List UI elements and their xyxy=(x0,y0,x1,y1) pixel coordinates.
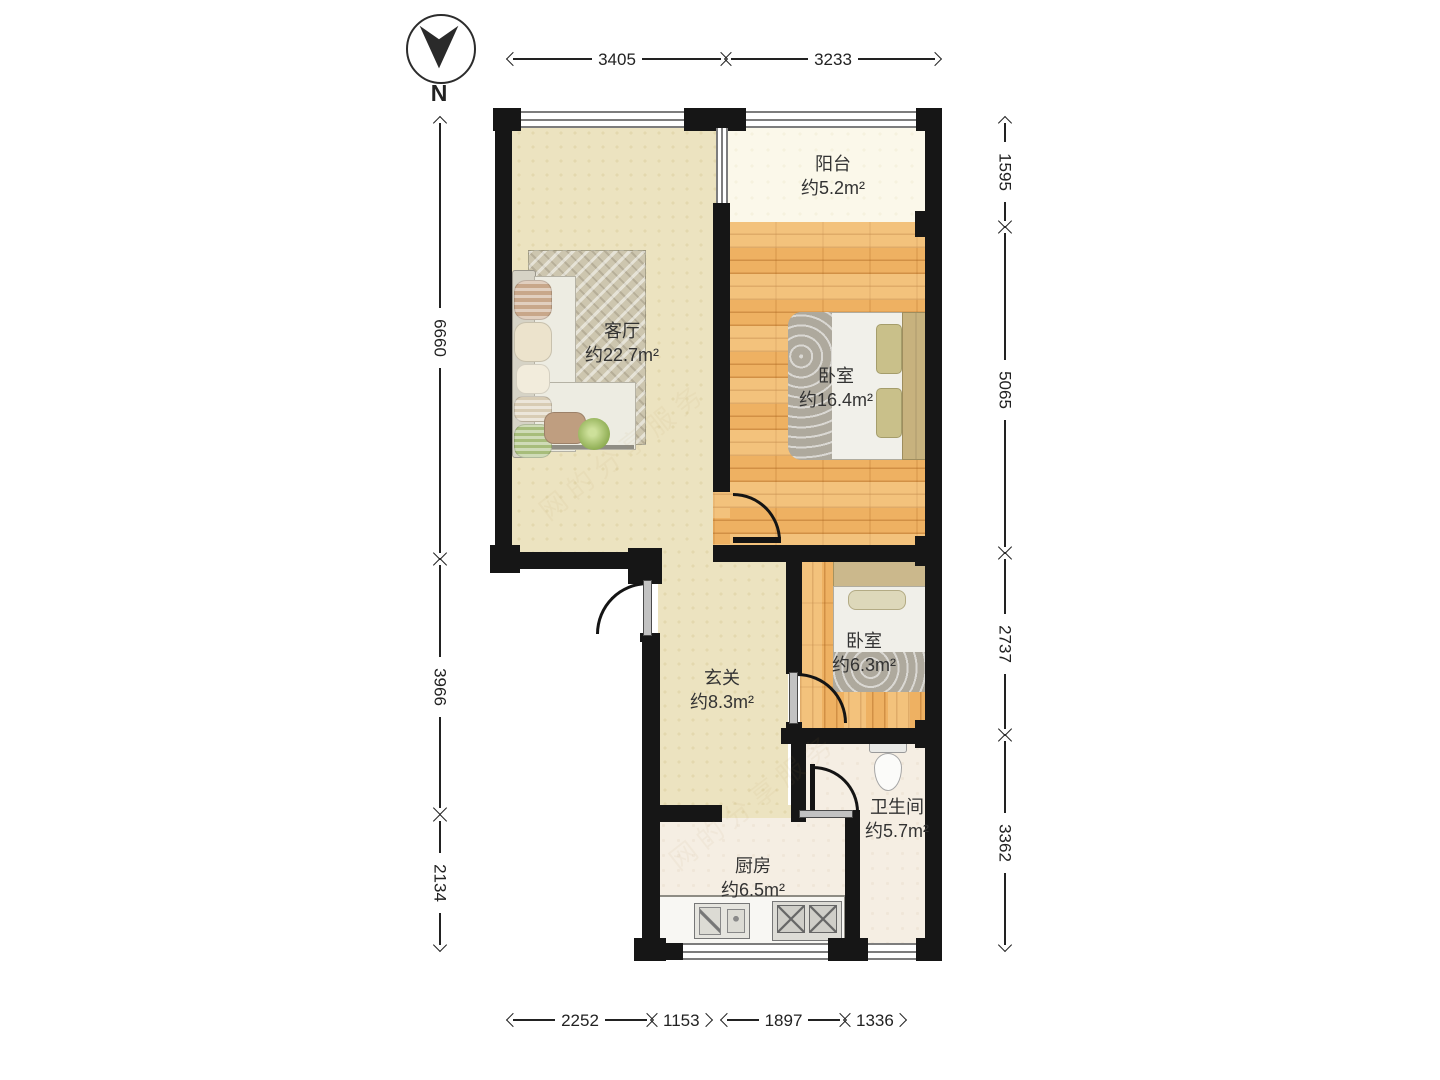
dim-line xyxy=(858,58,935,60)
room-label-kitchen: 厨房 约6.5m² xyxy=(668,854,838,903)
dim-label: 5065 xyxy=(998,360,1012,420)
dim-line xyxy=(439,123,441,308)
dim-label: 2134 xyxy=(433,853,447,913)
dim-label: 6660 xyxy=(433,308,447,368)
dimension-left-1: 6660 xyxy=(433,118,447,558)
sofa-pillow xyxy=(514,280,552,320)
dimension-bottom-1: 2252 xyxy=(508,1013,652,1027)
room-label-entry-hall: 玄关 约8.3m² xyxy=(637,666,807,715)
dimension-right-3: 2737 xyxy=(998,554,1012,734)
stove-burner xyxy=(777,905,805,933)
dimension-bottom-3: 1897 xyxy=(722,1013,845,1027)
dim-line xyxy=(1004,741,1006,813)
window xyxy=(683,943,828,960)
kitchen-sink-basin xyxy=(699,907,721,935)
wall-corner xyxy=(634,938,666,961)
dim-label: 2252 xyxy=(555,1012,605,1029)
dim-label: 1897 xyxy=(759,1012,809,1029)
wall-segment xyxy=(713,545,942,562)
dim-label: 1595 xyxy=(998,142,1012,202)
wall-corner xyxy=(684,108,746,131)
room-name: 阳台 xyxy=(748,152,918,176)
room-area: 约22.7m² xyxy=(537,343,707,367)
wall-corner xyxy=(493,108,521,131)
room-name: 卧室 xyxy=(779,629,949,653)
dim-arrow-up-icon xyxy=(433,558,447,572)
dimension-bottom-2: 1153 xyxy=(652,1013,722,1027)
room-name: 厨房 xyxy=(668,854,838,878)
potted-plant xyxy=(578,418,610,450)
room-area: 约8.3m² xyxy=(637,690,807,714)
dim-line xyxy=(439,717,441,809)
entry-door-arc xyxy=(596,582,648,634)
dimension-top-2: 3233 xyxy=(726,52,940,66)
dimension-right-2: 5065 xyxy=(998,228,1012,552)
wall-corner xyxy=(916,938,942,961)
room-label-bedroom-main: 卧室 约16.4m² xyxy=(751,364,921,413)
dim-arrow-right-icon xyxy=(928,52,942,66)
dim-line xyxy=(1004,559,1006,614)
room-label-balcony: 阳台 约5.2m² xyxy=(748,152,918,201)
window xyxy=(521,111,684,128)
dim-line xyxy=(642,58,721,60)
dim-arrow-up-icon xyxy=(998,226,1012,240)
dim-line xyxy=(439,565,441,657)
wall-segment xyxy=(495,111,512,569)
dim-arrow-left-icon xyxy=(720,1013,734,1027)
dimension-right-1: 1595 xyxy=(998,118,1012,226)
dim-line xyxy=(1004,873,1006,945)
dim-label: 3233 xyxy=(808,51,858,68)
wall-corner xyxy=(915,211,942,237)
compass xyxy=(406,14,476,84)
dimension-left-2: 3966 xyxy=(433,560,447,813)
dim-line xyxy=(513,58,592,60)
north-label: N xyxy=(406,80,472,107)
window xyxy=(868,943,916,960)
dim-arrow-up-icon xyxy=(998,734,1012,748)
wall-segment xyxy=(713,203,730,492)
room-label-bathroom: 卫生间 约5.7m² xyxy=(812,795,982,844)
single-bed-pillow xyxy=(848,590,906,610)
dimension-bottom-4: 1336 xyxy=(845,1013,940,1027)
room-area: 约16.4m² xyxy=(751,388,921,412)
room-name: 卫生间 xyxy=(812,795,982,819)
dim-line xyxy=(1004,233,1006,360)
sofa-pillow xyxy=(516,364,550,394)
dim-label: 3966 xyxy=(433,657,447,717)
dim-arrow-up-icon xyxy=(998,116,1012,130)
dim-arrow-up-icon xyxy=(998,552,1012,566)
dim-arrow-left-icon xyxy=(724,52,738,66)
dim-arrow-down-icon xyxy=(998,938,1012,952)
room-name: 玄关 xyxy=(637,666,807,690)
dim-line xyxy=(1004,420,1006,547)
dim-label: 2737 xyxy=(998,614,1012,674)
wall-corner xyxy=(915,536,942,566)
room-name: 客厅 xyxy=(537,319,707,343)
stove-burner xyxy=(809,905,837,933)
room-area: 约6.5m² xyxy=(668,878,838,902)
room-area: 约5.2m² xyxy=(748,176,918,200)
room-label-living-room: 客厅 约22.7m² xyxy=(537,319,707,368)
bedroom-main-door-leaf xyxy=(733,537,781,543)
dimension-right-4: 3362 xyxy=(998,736,1012,950)
dim-label: 3362 xyxy=(998,813,1012,873)
dim-line xyxy=(731,58,808,60)
single-bed-headboard xyxy=(833,558,927,588)
wall-corner xyxy=(916,108,942,131)
dimension-top-1: 3405 xyxy=(508,52,726,66)
north-arrow-icon xyxy=(408,16,470,78)
wall-corner xyxy=(490,545,520,573)
dim-label: 3405 xyxy=(592,51,642,68)
kitchen-sink-basin xyxy=(727,909,745,933)
dim-arrow-down-icon xyxy=(433,938,447,952)
dimension-left-3: 2134 xyxy=(433,816,447,950)
window xyxy=(746,111,916,128)
dim-arrow-up-icon xyxy=(433,116,447,130)
wall-corner xyxy=(915,720,942,748)
entry-door-leaf xyxy=(643,580,652,636)
dim-arrow-left-icon xyxy=(506,1013,520,1027)
dim-line xyxy=(439,368,441,553)
wall-corner xyxy=(828,938,868,961)
room-name: 卧室 xyxy=(751,364,921,388)
wall-segment xyxy=(642,805,722,822)
dim-arrow-left-icon xyxy=(506,52,520,66)
room-area: 约5.7m² xyxy=(812,819,982,843)
window xyxy=(716,128,728,203)
dim-arrow-up-icon xyxy=(433,814,447,828)
floor-bedroom-main-doorway xyxy=(713,492,730,547)
